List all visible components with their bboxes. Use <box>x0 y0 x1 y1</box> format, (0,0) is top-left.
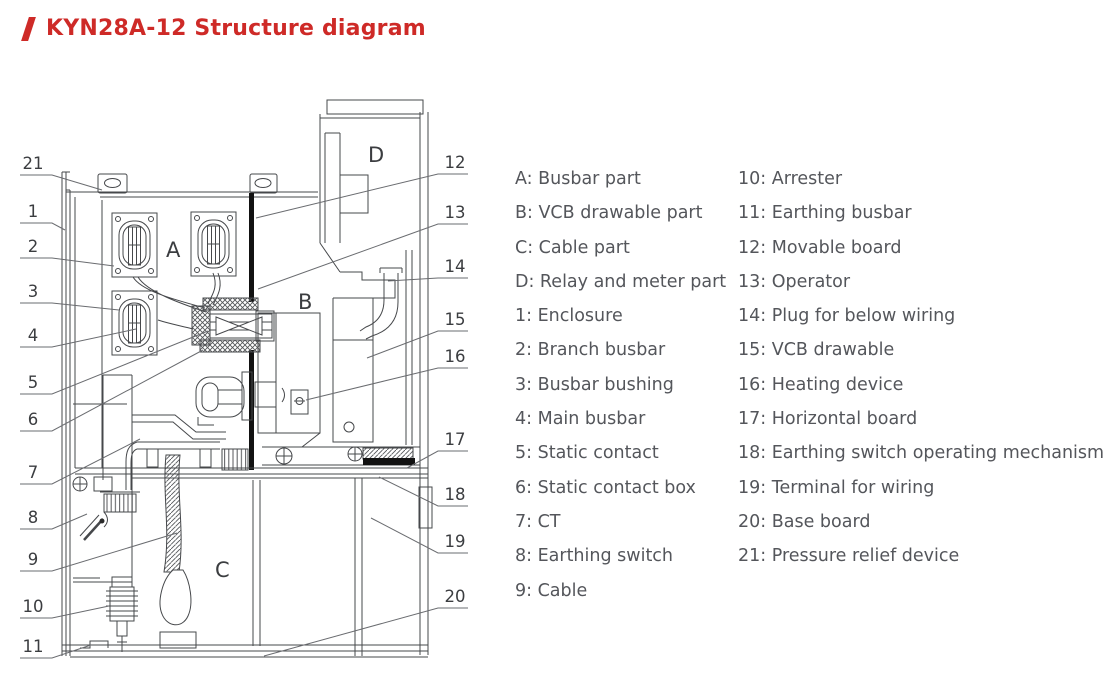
callout-number-13: 13 <box>445 203 466 222</box>
callout-number-8: 8 <box>28 508 39 527</box>
page-title: KYN28A-12 Structure diagram <box>46 16 426 41</box>
legend-item: 11: Earthing busbar <box>738 196 1104 230</box>
callout-number-15: 15 <box>445 310 466 329</box>
legend-item: 17: Horizontal board <box>738 402 1104 436</box>
callout-number-6: 6 <box>28 410 39 429</box>
callout-number-9: 9 <box>28 550 39 569</box>
legend-item: 8: Earthing switch <box>515 539 726 573</box>
callout-leader-21 <box>20 175 102 190</box>
legend-item: 5: Static contact <box>515 436 726 470</box>
callout-number-14: 14 <box>445 257 466 276</box>
legend-item: B: VCB drawable part <box>515 196 726 230</box>
legend-item: 4: Main busbar <box>515 402 726 436</box>
callout-number-4: 4 <box>28 326 39 345</box>
callout-leader-13 <box>258 224 468 289</box>
callout-number-20: 20 <box>445 587 466 606</box>
static-contact-box <box>192 298 274 352</box>
callout-number-16: 16 <box>445 347 466 366</box>
callout-number-18: 18 <box>445 485 466 504</box>
busbar-bushing <box>112 291 157 355</box>
legend-item: 6: Static contact box <box>515 471 726 505</box>
callout-leader-2 <box>20 258 114 266</box>
legend-item: 15: VCB drawable <box>738 333 1104 367</box>
legend-column-right: 10: Arrester11: Earthing busbar12: Movab… <box>738 162 1104 574</box>
busbar-bushing <box>112 213 157 277</box>
callout-leader-16 <box>306 368 468 400</box>
callout-leader-20 <box>264 608 468 656</box>
compartment-letter-C: C <box>215 558 230 582</box>
vcb-drawable-part <box>73 250 420 490</box>
legend-item: C: Cable part <box>515 231 726 265</box>
callout-number-21: 21 <box>23 154 44 173</box>
legend-item: 3: Busbar bushing <box>515 368 726 402</box>
structure-diagram: 211234567891011121314151617181920 ABCD <box>0 0 500 674</box>
compartment-letter-A: A <box>166 238 181 262</box>
page-title-block: KYN28A-12 Structure diagram <box>25 16 426 41</box>
callout-number-11: 11 <box>23 637 44 656</box>
legend-item: 10: Arrester <box>738 162 1104 196</box>
compartment-letter-B: B <box>298 290 312 314</box>
legend-item: 9: Cable <box>515 574 726 608</box>
callout-number-1: 1 <box>28 202 39 221</box>
callout-leader-9 <box>20 533 177 571</box>
legend-item: 2: Branch busbar <box>515 333 726 367</box>
legend-item: D: Relay and meter part <box>515 265 726 299</box>
callout-number-2: 2 <box>28 237 39 256</box>
legend-item: 16: Heating device <box>738 368 1104 402</box>
legend-item: 13: Operator <box>738 265 1104 299</box>
callout-leader-6 <box>20 350 203 431</box>
legend-item: 18: Earthing switch operating mechanism <box>738 436 1104 470</box>
callout-leader-12 <box>256 174 468 218</box>
legend-item: 20: Base board <box>738 505 1104 539</box>
lower-contact-insulator <box>196 372 252 425</box>
compartment-letter-D: D <box>368 143 384 167</box>
callout-number-7: 7 <box>28 463 39 482</box>
callout-number-10: 10 <box>23 597 44 616</box>
callout-number-19: 19 <box>445 532 466 551</box>
callout-number-5: 5 <box>28 373 39 392</box>
legend-item: 14: Plug for below wiring <box>738 299 1104 333</box>
callout-number-17: 17 <box>445 430 466 449</box>
legend-item: 19: Terminal for wiring <box>738 471 1104 505</box>
busbar-bushing <box>191 212 236 276</box>
callout-leader-1 <box>20 223 65 230</box>
legend-item: 7: CT <box>515 505 726 539</box>
cable-compartment <box>73 455 432 656</box>
callout-number-12: 12 <box>445 153 466 172</box>
legend-item: 21: Pressure relief device <box>738 539 1104 573</box>
callout-number-3: 3 <box>28 282 39 301</box>
legend-item: A: Busbar part <box>515 162 726 196</box>
pressure-relief-lugs <box>98 174 277 193</box>
legend-item: 12: Movable board <box>738 231 1104 265</box>
legend-item: 1: Enclosure <box>515 299 726 333</box>
legend-column-left: A: Busbar partB: VCB drawable partC: Cab… <box>515 162 726 608</box>
